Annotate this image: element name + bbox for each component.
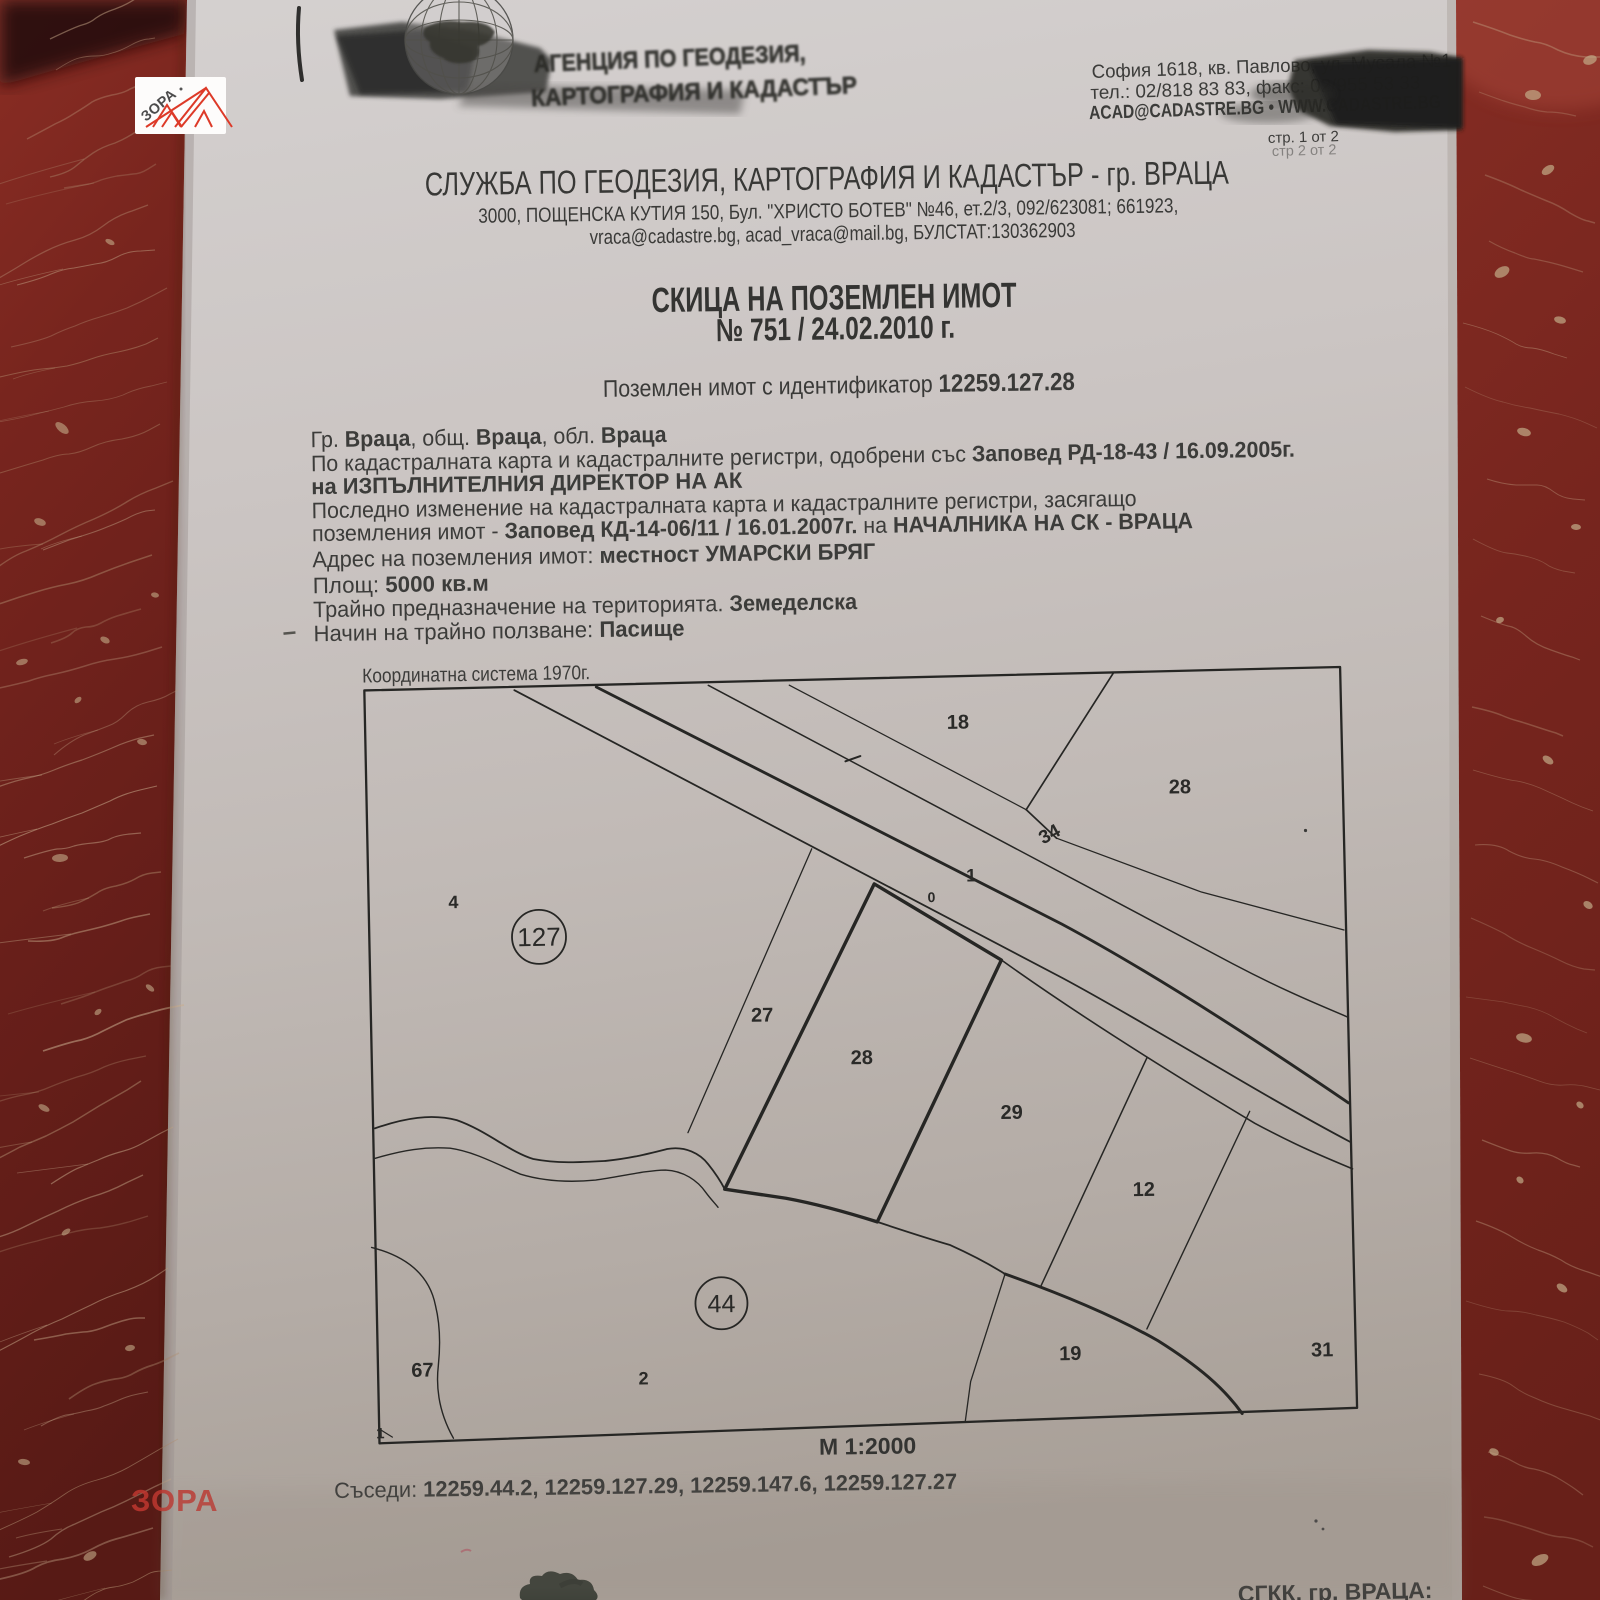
svg-text:28: 28: [1169, 776, 1192, 798]
svg-text:127: 127: [517, 922, 561, 953]
svg-text:12: 12: [1133, 1179, 1156, 1201]
svg-text:44: 44: [707, 1290, 735, 1318]
svg-text:67: 67: [411, 1360, 434, 1382]
svg-text:4: 4: [448, 892, 458, 912]
svg-text:28: 28: [851, 1047, 874, 1069]
svg-text:27: 27: [751, 1004, 774, 1026]
svg-text:19: 19: [1059, 1343, 1082, 1365]
svg-text:М 1:2000: М 1:2000: [819, 1432, 917, 1459]
svg-text:31: 31: [1311, 1339, 1334, 1361]
svg-text:1: 1: [376, 1425, 385, 1442]
svg-text:стр 2 от 2: стр 2 от 2: [1272, 142, 1337, 160]
svg-text:18: 18: [947, 711, 970, 733]
svg-text:0: 0: [927, 889, 935, 905]
svg-text:2: 2: [638, 1368, 648, 1388]
svg-text:Координатна система 1970г.: Координатна система 1970г.: [362, 662, 590, 687]
svg-text:29: 29: [1000, 1102, 1023, 1124]
svg-text:1: 1: [966, 865, 976, 885]
svg-text:№ 751 / 24.02.2010 г.: № 751 / 24.02.2010 г.: [716, 309, 956, 349]
